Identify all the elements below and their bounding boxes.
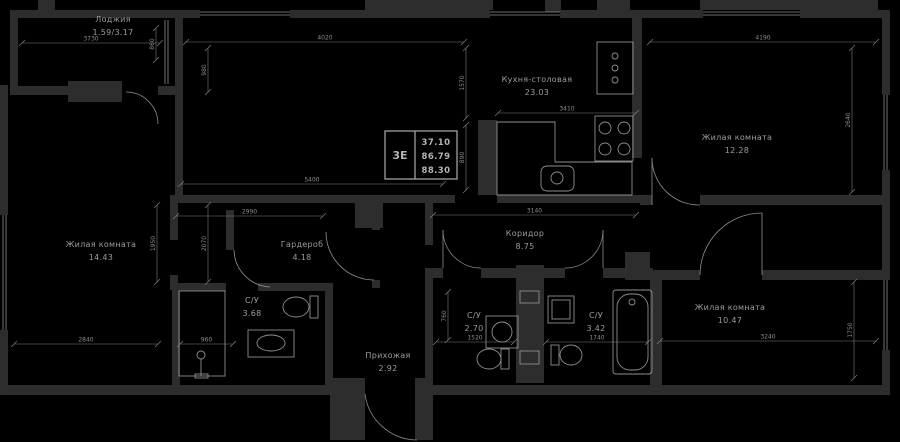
room-label: Жилая комната <box>702 133 773 142</box>
room-label: Лоджия <box>95 15 130 24</box>
room-label: Жилая комната <box>66 240 137 249</box>
wall <box>425 203 433 245</box>
room-label: С/У <box>589 311 603 320</box>
room-label: С/У <box>467 311 481 320</box>
dimension-value: 980 <box>201 64 208 76</box>
room-area: 1.59/3.17 <box>92 28 133 37</box>
floor-plan: 3730402041903410540029903140284096015201… <box>0 0 900 442</box>
wall <box>632 18 642 158</box>
wall <box>640 195 652 205</box>
wall <box>0 330 8 390</box>
room-label: Кухня-столовая <box>502 75 573 84</box>
dimension-value: 3410 <box>559 106 574 113</box>
wall <box>497 195 640 203</box>
room-label: Гардероб <box>281 240 324 249</box>
dimension-value: 860 <box>149 38 156 50</box>
wall <box>10 18 18 86</box>
dimension-value: 4190 <box>755 35 770 42</box>
apartment-type: 3Е <box>392 149 407 162</box>
dimension-value: 4020 <box>317 35 332 42</box>
wall <box>325 283 333 385</box>
wall <box>516 265 544 383</box>
dimension-value: 1750 <box>847 322 854 337</box>
wall <box>158 86 175 95</box>
total-area-value: 88.30 <box>422 166 451 176</box>
dimension-value: 1740 <box>589 335 604 342</box>
wall <box>0 85 8 215</box>
room-label: Жилая комната <box>695 303 766 312</box>
dimension-value: 1950 <box>150 236 157 251</box>
wall <box>882 170 890 280</box>
wall <box>478 120 497 195</box>
room-area: 3.68 <box>242 309 261 318</box>
wall <box>700 195 890 205</box>
room-area: 12.28 <box>725 146 749 155</box>
dimension-value: 2840 <box>78 337 93 344</box>
wall <box>10 10 175 18</box>
dimension-value: 1570 <box>459 75 466 90</box>
wall <box>882 18 890 95</box>
floor-plan-canvas: 3730402041903410540029903140284096015201… <box>0 0 900 442</box>
room-area: 23.03 <box>525 88 549 97</box>
wall <box>365 0 493 10</box>
room-area: 8.75 <box>515 242 534 251</box>
wall <box>372 203 380 230</box>
wall <box>425 268 433 385</box>
dimension-value: 5400 <box>304 177 319 184</box>
wall <box>68 81 122 102</box>
wall <box>882 350 890 390</box>
dimension-value: 3240 <box>760 334 775 341</box>
room-area: 2.92 <box>378 364 397 373</box>
wall <box>10 86 68 95</box>
wall <box>545 0 561 12</box>
wall <box>597 0 630 10</box>
dimension-value: 2990 <box>242 209 257 216</box>
dimension-value: 3140 <box>527 208 542 215</box>
wall <box>372 280 380 288</box>
wall <box>290 10 490 18</box>
room-label: С/У <box>245 296 259 305</box>
living-area-value: 37.10 <box>422 138 451 148</box>
wall <box>428 268 443 278</box>
room-area: 4.18 <box>292 253 311 262</box>
wall <box>433 385 890 395</box>
area-value: 86.79 <box>422 152 451 162</box>
dimension-value: 2070 <box>201 236 208 251</box>
wall <box>170 195 178 240</box>
dimension-value: 760 <box>441 310 448 322</box>
wall <box>603 268 653 278</box>
room-area: 3.42 <box>586 324 605 333</box>
wall <box>175 10 200 18</box>
dimension-value: 960 <box>201 337 213 344</box>
wall <box>762 270 890 280</box>
dimension-value: 890 <box>459 152 466 164</box>
dimension-value: 1520 <box>467 335 482 342</box>
dimension-value: 2640 <box>845 112 852 127</box>
plan-background <box>0 0 900 442</box>
room-area: 14.43 <box>89 253 113 262</box>
wall <box>330 378 365 440</box>
wall <box>560 10 703 18</box>
wall <box>330 195 455 203</box>
room-area: 10.47 <box>718 316 742 325</box>
wall <box>172 283 226 291</box>
wall <box>415 378 433 440</box>
wall <box>481 268 520 278</box>
wall <box>175 195 330 203</box>
wall <box>544 268 565 278</box>
room-area: 2.70 <box>464 324 483 333</box>
room-label: Коридор <box>506 229 544 238</box>
room-label: Прихожая <box>365 351 410 360</box>
wall <box>800 10 890 18</box>
wall <box>700 0 878 10</box>
wall <box>175 18 183 195</box>
wall <box>0 385 330 395</box>
